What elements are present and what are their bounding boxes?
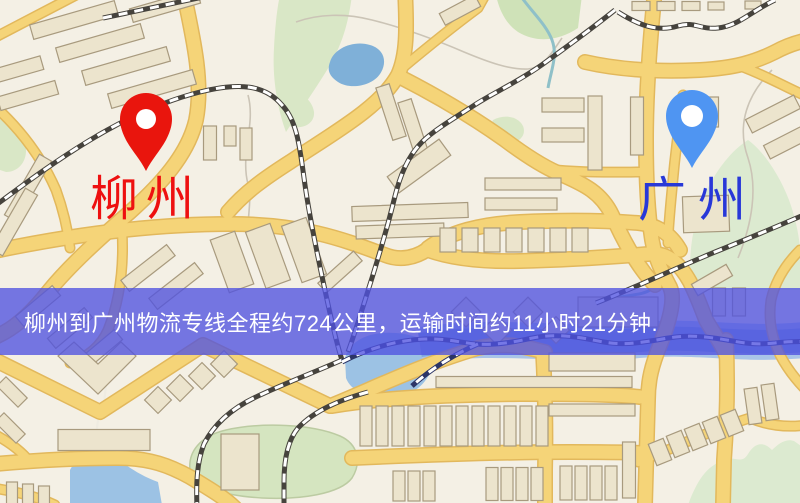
route-info-text: 柳州到广州物流专线全程约724公里，运输时间约11小时21分钟. <box>0 306 658 338</box>
origin-pin[interactable] <box>114 87 178 171</box>
origin-label: 柳州 <box>90 176 202 224</box>
origin-pin-icon <box>114 87 178 171</box>
destination-pin[interactable] <box>660 84 724 168</box>
route-info-banner: 柳州到广州物流专线全程约724公里，运输时间约11小时21分钟. <box>0 288 800 355</box>
destination-label: 广州 <box>638 177 758 225</box>
map-image: 柳州 广州 柳州到广州物流专线全程约724公里，运输时间约11小时21分钟. <box>0 0 800 503</box>
destination-pin-icon <box>660 84 724 168</box>
map-canvas <box>0 0 800 503</box>
